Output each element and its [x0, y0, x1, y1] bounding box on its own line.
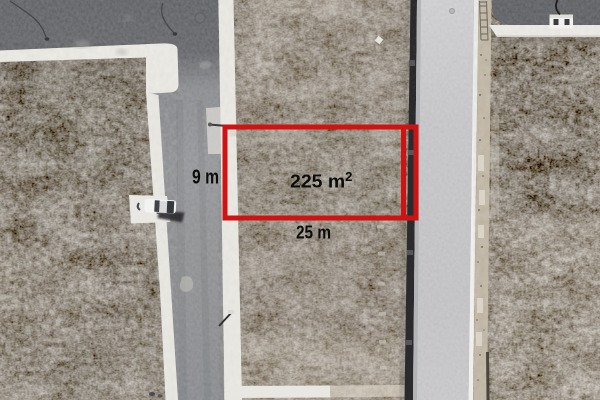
svg-text:25 m: 25 m	[296, 222, 331, 243]
svg-text:225 m2: 225 m2	[290, 170, 353, 191]
svg-text:9 m: 9 m	[192, 167, 219, 189]
